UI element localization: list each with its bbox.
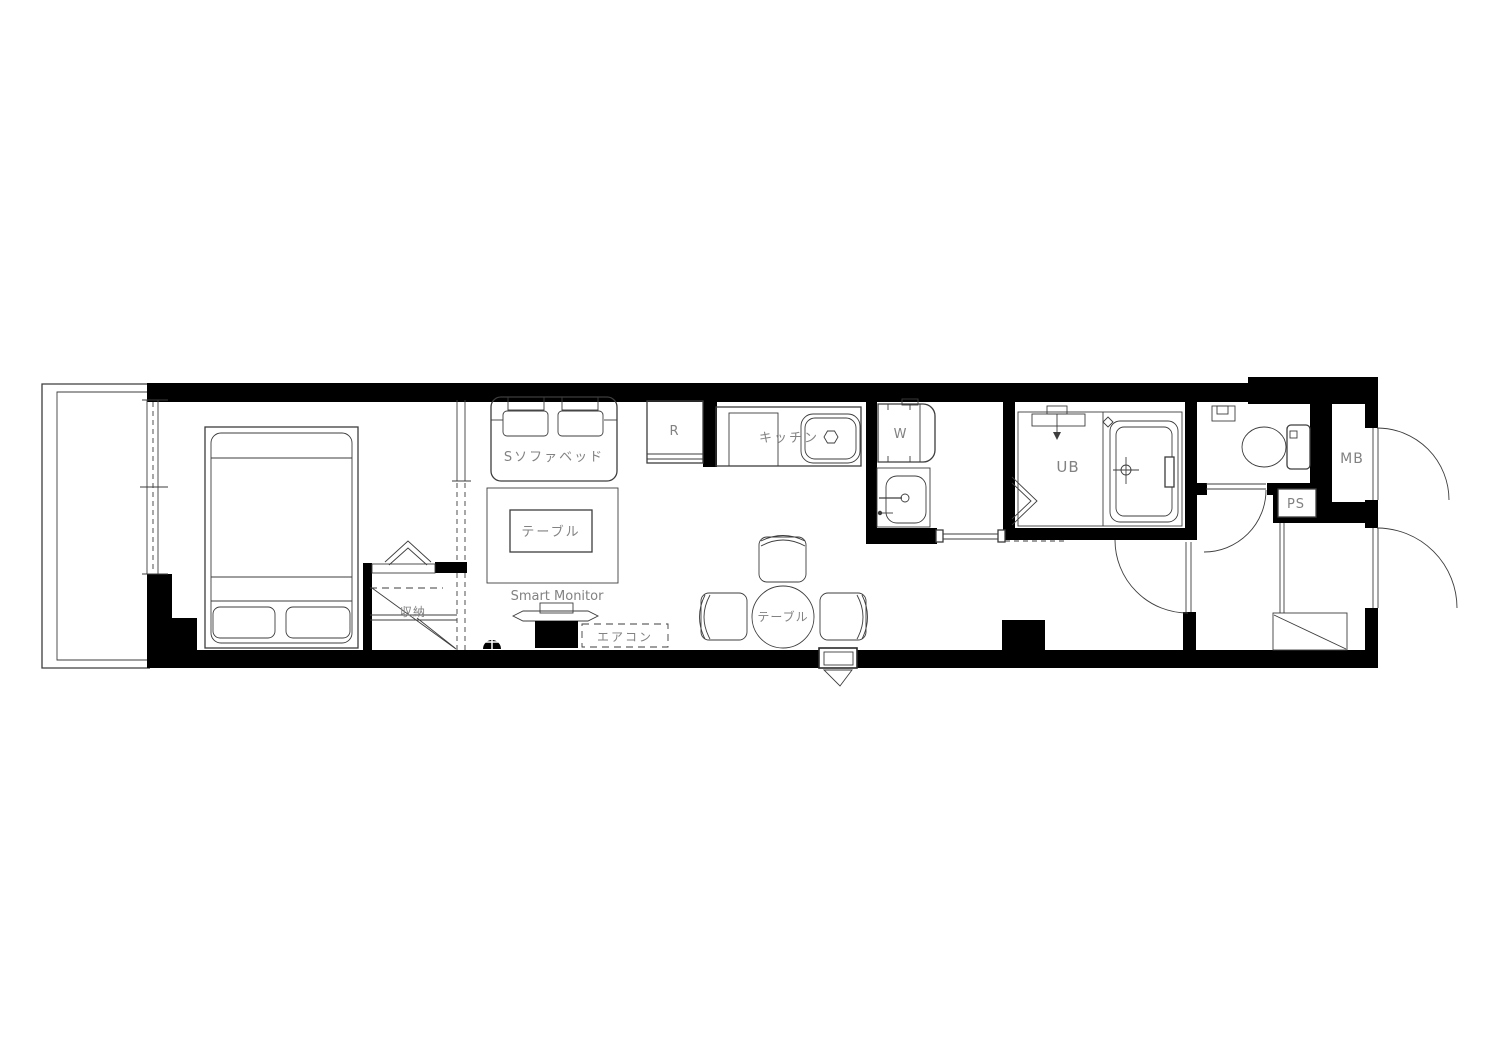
unit-bath [1012, 406, 1182, 526]
smart-monitor-label: Smart Monitor [511, 589, 605, 604]
bath-faucet-icon [1047, 406, 1067, 414]
balcony [42, 384, 150, 668]
unit-bath-label: UB [1056, 458, 1079, 476]
walls [147, 377, 1378, 668]
toilet-room [1204, 406, 1310, 552]
wall-right-stub-bottom [1365, 608, 1378, 668]
wall-hall-door-post [1183, 612, 1196, 652]
wall-right-stub-mid [1365, 500, 1378, 528]
smart-monitor [513, 603, 598, 648]
dining-set [700, 536, 868, 649]
tub-handle [1165, 457, 1174, 487]
kitchen-label: キッチン [759, 431, 819, 446]
pipe-space-label: PS [1287, 497, 1305, 512]
refrigerator-label: R [669, 424, 678, 439]
wash-basin [877, 468, 930, 527]
pillow [213, 607, 275, 638]
folding-door-icon [389, 548, 427, 565]
washing-machine [878, 399, 935, 462]
dining-table-label: テーブル [757, 609, 808, 624]
hallway-door [1115, 540, 1191, 613]
mb-door-swing [1377, 428, 1449, 500]
bifold-door-icon [1012, 477, 1037, 525]
sofa-bed-label: Sソファベッド [504, 450, 604, 465]
faucet-icon [901, 494, 909, 502]
hall-door-swing [1115, 540, 1188, 613]
entrance-door-swing [1377, 528, 1457, 608]
toilet-bowl [1242, 427, 1286, 467]
monitor-stand [535, 621, 578, 648]
wall-toilet-door-left-stub [1195, 483, 1207, 495]
floor-plan-page: Sソファベッド テーブル Smart Monitor エアコン R キッチン テ… [0, 0, 1500, 1060]
wall-top [147, 383, 1253, 402]
wall-closet-left [363, 563, 372, 651]
wall-bottom [147, 650, 1378, 668]
wall-partition-block [457, 562, 467, 573]
wall-top-right [1248, 377, 1378, 404]
meter-box-door [1373, 428, 1449, 500]
wall-fixture-icon [483, 634, 501, 649]
air-conditioner-label: エアコン [597, 630, 653, 644]
faucet-icon [878, 511, 882, 515]
wall-closet-top [435, 562, 458, 573]
faucet-icon [824, 431, 838, 443]
wall-toilet-right [1310, 404, 1332, 502]
storage-label: 収納 [400, 605, 426, 619]
vent-window [819, 648, 857, 686]
meter-box-label: MB [1340, 451, 1364, 467]
wall-bottom-pillar [1002, 620, 1045, 650]
sliding-partition [452, 400, 471, 650]
folding-door-icon [385, 541, 431, 562]
wall-washroom-bottom [866, 528, 937, 544]
pillow [286, 607, 350, 638]
wall-washroom-left [866, 402, 877, 544]
living-table-label: テーブル [521, 524, 580, 540]
toilet-controller [1212, 406, 1235, 421]
floor-plan-drawing: Sソファベッド テーブル Smart Monitor エアコン R キッチン テ… [0, 0, 1500, 1060]
window-opening-icon [824, 670, 852, 686]
toilet-door-swing [1204, 490, 1266, 552]
bath-vanity [1032, 414, 1085, 426]
bath-faucet-icon [1053, 432, 1061, 440]
sofa-cushion [503, 411, 548, 436]
wall-bedroom-left-lower [147, 574, 172, 622]
monitor-screen [513, 611, 598, 621]
sofa-cushion [558, 411, 603, 436]
wall-ub-right [1185, 402, 1197, 528]
wall-ub-bottom [1003, 528, 1197, 540]
wall-kitchen-pillar [703, 402, 717, 467]
wall-bedroom-left-step [147, 618, 197, 652]
wall-right-stub-top [1365, 404, 1378, 428]
double-bed [205, 427, 358, 648]
washer-label: W [894, 427, 907, 442]
bedroom-window [140, 400, 168, 574]
storage-closet [370, 541, 457, 649]
sofa-bed [491, 397, 617, 481]
